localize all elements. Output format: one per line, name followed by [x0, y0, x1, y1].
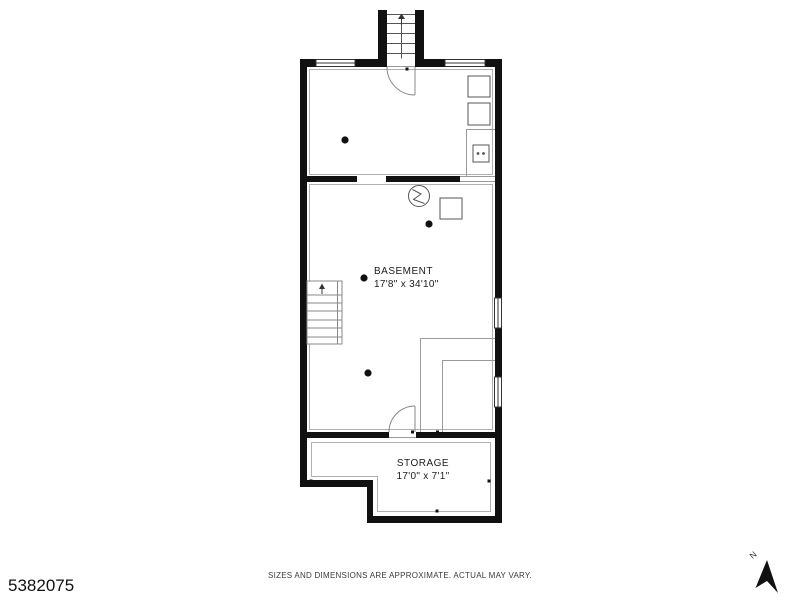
window-right-lower	[495, 377, 502, 407]
room-label-storage: STORAGE 17'0" x 7'1"	[380, 458, 466, 483]
floorplan-page: N BASEMENT 17'8" x 34'10" STORAGE 17'0" …	[0, 0, 800, 600]
equipment-pad	[440, 198, 462, 219]
disclaimer-text: SIZES AND DIMENSIONS ARE APPROXIMATE. AC…	[0, 571, 800, 580]
entry-door-swing	[387, 67, 415, 96]
storage-name: STORAGE	[380, 458, 466, 471]
storage-dimensions: 17'0" x 7'1"	[380, 471, 466, 484]
exterior-stairwell	[378, 10, 424, 60]
room-label-basement: BASEMENT 17'8" x 34'10"	[374, 266, 439, 291]
basement-dimensions: 17'8" x 34'10"	[374, 279, 439, 292]
window-top-left	[316, 60, 355, 67]
interior-stairs	[307, 281, 342, 344]
window-top-right	[445, 60, 485, 67]
utility-sink	[473, 145, 489, 162]
platform-outline	[421, 339, 496, 433]
compass-north-label: N	[747, 549, 758, 561]
wall-right	[495, 59, 502, 523]
window-right-upper	[495, 298, 502, 328]
wall-bottom	[367, 516, 502, 523]
floorplan-drawing: N	[0, 0, 800, 600]
utility-cabinet-2	[468, 103, 490, 125]
wall-mid-left	[307, 176, 357, 182]
support-columns	[341, 136, 432, 376]
wall-left	[300, 59, 307, 487]
utility-cabinet-1	[468, 76, 490, 97]
basement-name: BASEMENT	[374, 266, 439, 279]
wall-mid-right	[386, 176, 460, 182]
utility-fixtures	[460, 76, 495, 182]
sump-pump-symbol	[409, 186, 430, 207]
